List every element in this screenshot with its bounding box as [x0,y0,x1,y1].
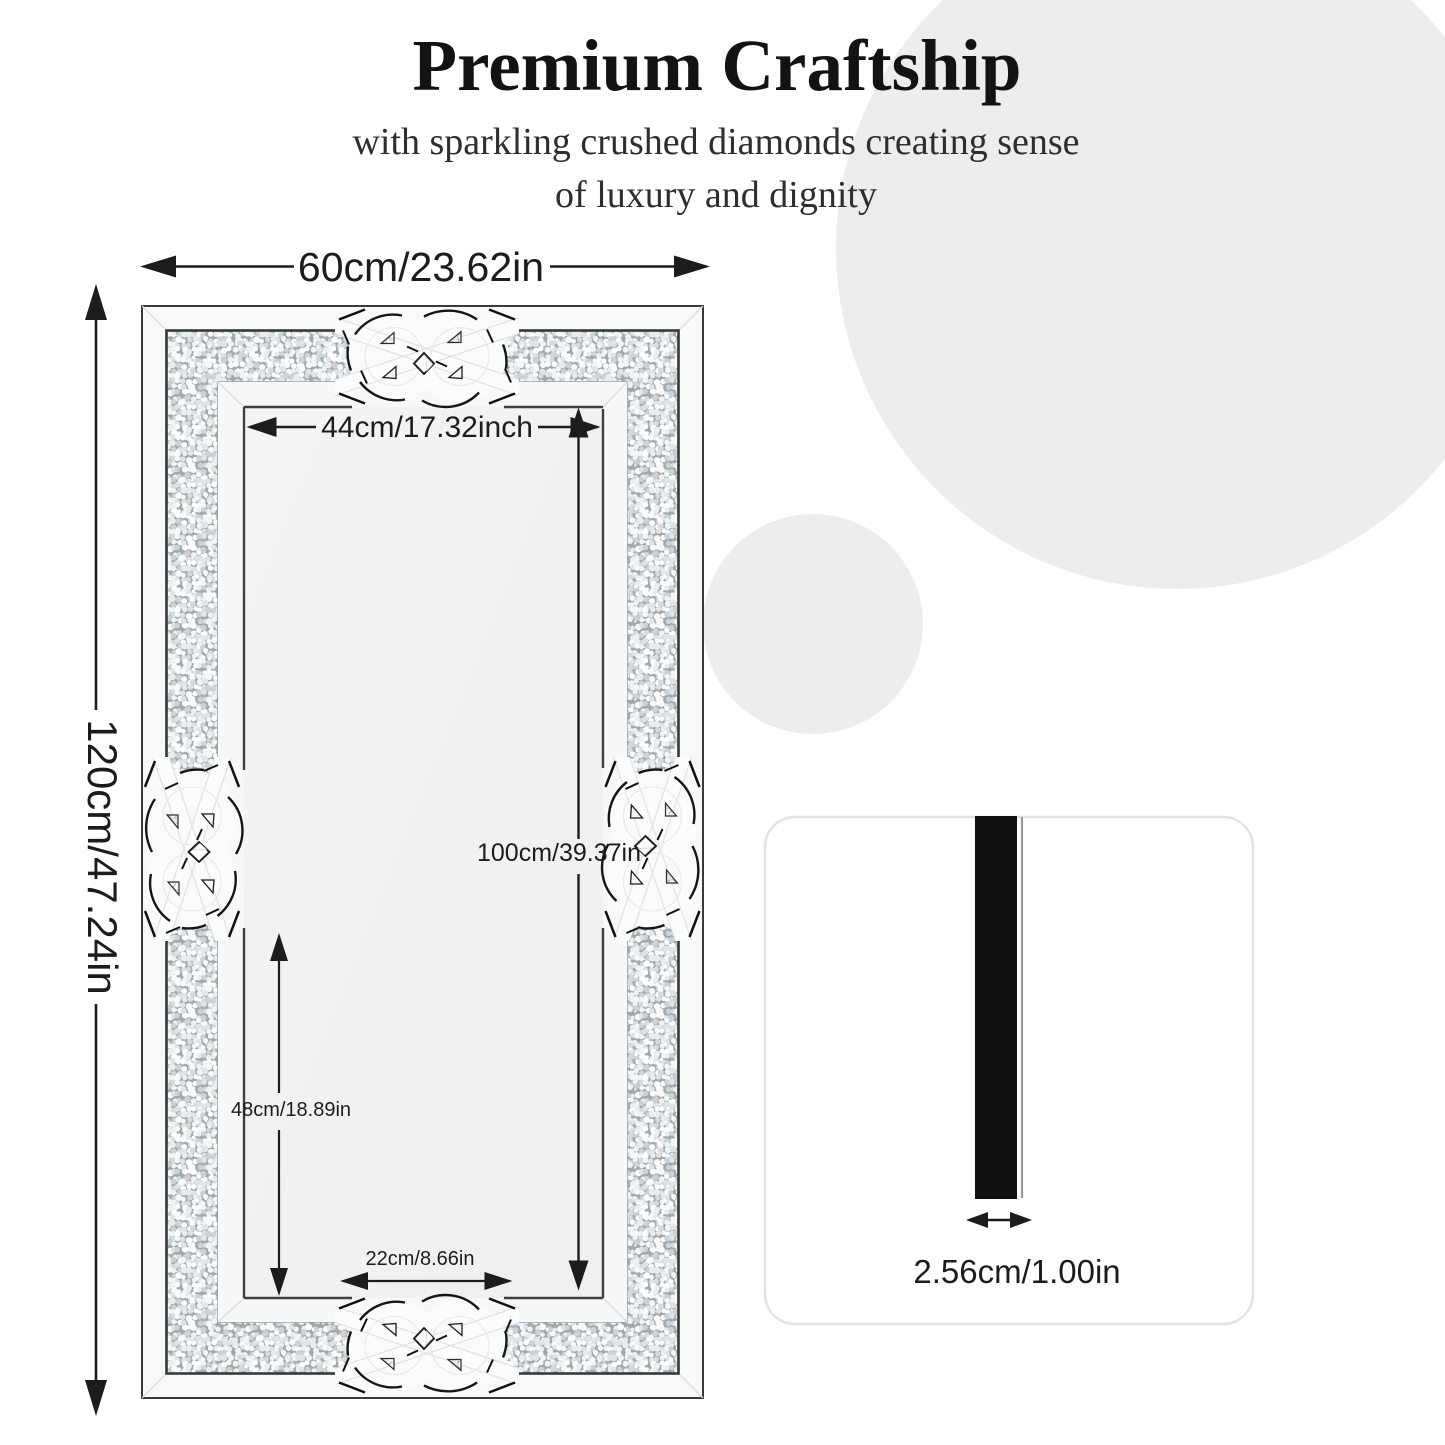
svg-text:100cm/39.37in: 100cm/39.37in [477,839,641,867]
svg-text:2.56cm/1.00in: 2.56cm/1.00in [913,1253,1120,1290]
svg-text:of luxury and dignity: of luxury and dignity [555,174,877,216]
svg-text:60cm/23.62in: 60cm/23.62in [298,244,544,290]
svg-text:44cm/17.32inch: 44cm/17.32inch [321,411,533,444]
svg-text:Premium Craftship: Premium Craftship [413,25,1022,106]
svg-text:22cm/8.66in: 22cm/8.66in [366,1248,475,1270]
svg-text:with sparkling crushed diamond: with sparkling crushed diamonds creating… [352,121,1079,163]
svg-text:48cm/18.89in: 48cm/18.89in [231,1099,351,1121]
svg-text:120cm/47.24in: 120cm/47.24in [79,719,126,995]
